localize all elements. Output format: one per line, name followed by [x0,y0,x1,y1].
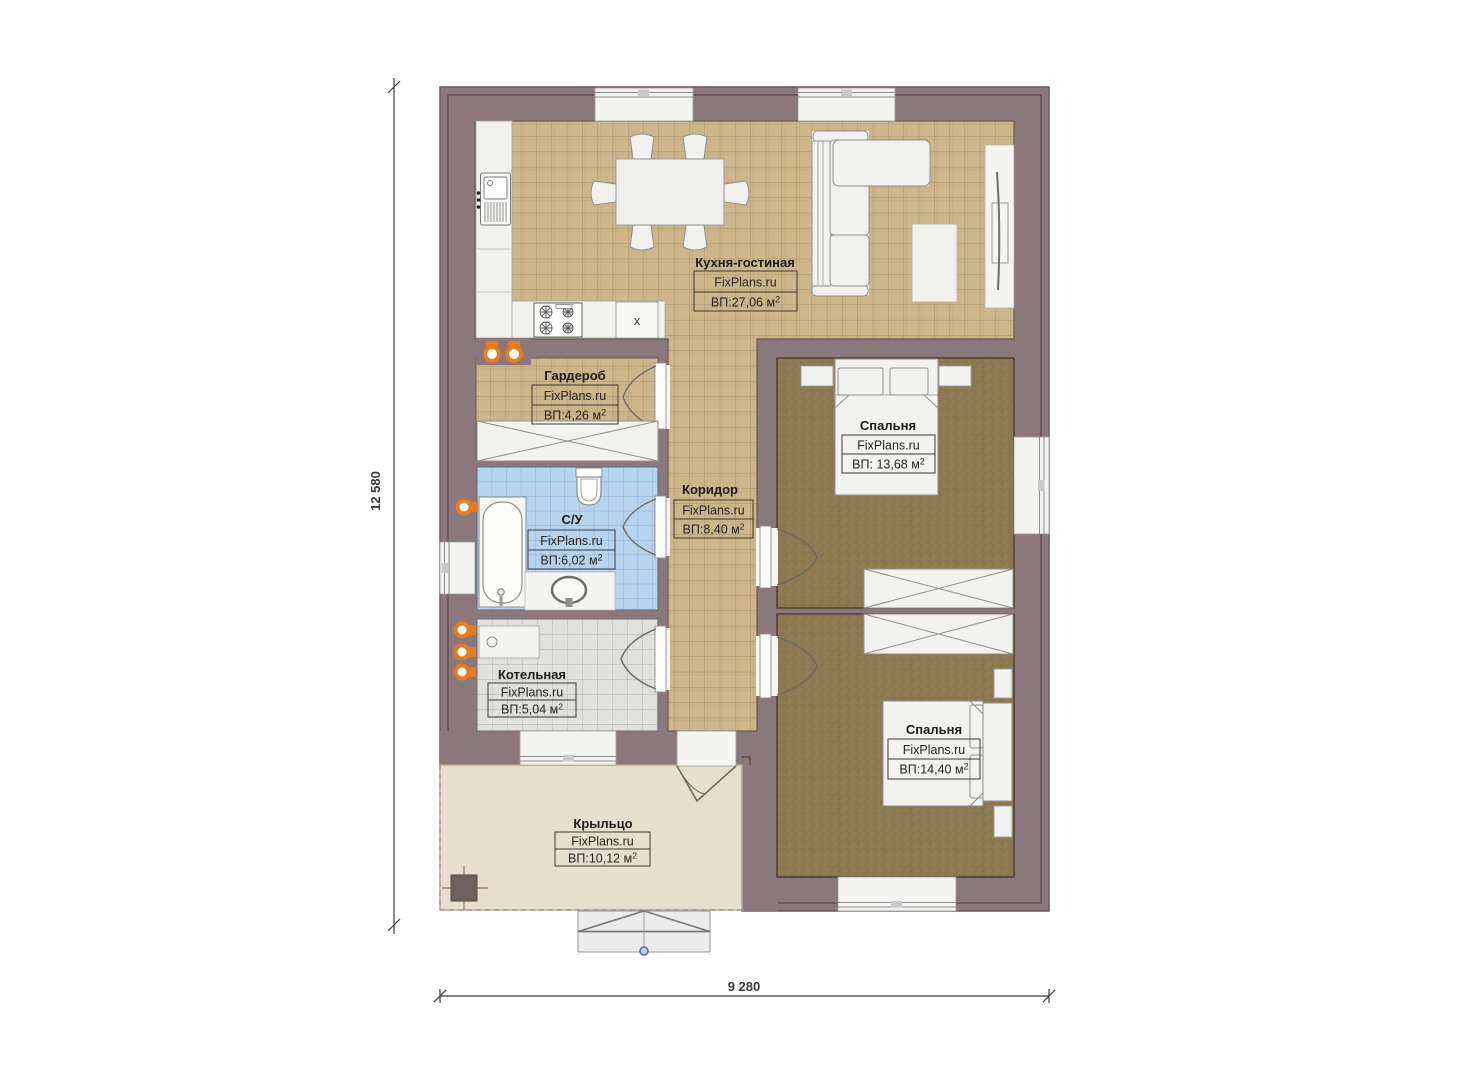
svg-text:ВП: 13,68 м2: ВП: 13,68 м2 [852,457,925,472]
svg-text:ВП:5,04 м2: ВП:5,04 м2 [501,702,563,717]
svg-text:Коридор: Коридор [682,482,738,497]
svg-text:Спальня: Спальня [860,418,916,433]
svg-text:ВП:10,12 м2: ВП:10,12 м2 [568,851,637,866]
svg-text:Гардероб: Гардероб [544,368,605,383]
svg-text:FixPlans.ru: FixPlans.ru [501,686,564,700]
svg-text:12 580: 12 580 [368,471,383,511]
svg-text:ВП:27,06 м2: ВП:27,06 м2 [711,295,780,310]
svg-text:ВП:4,26 м2: ВП:4,26 м2 [544,408,606,423]
svg-text:С/У: С/У [561,512,583,527]
svg-text:FixPlans.ru: FixPlans.ru [903,743,966,757]
svg-text:Крыльцо: Крыльцо [573,816,632,831]
svg-text:FixPlans.ru: FixPlans.ru [714,276,777,290]
svg-text:FixPlans.ru: FixPlans.ru [571,835,634,849]
svg-text:x: x [634,313,641,328]
svg-text:FixPlans.ru: FixPlans.ru [544,389,607,403]
svg-text:Спальня: Спальня [906,722,962,737]
svg-text:Кухня-гостиная: Кухня-гостиная [695,255,795,270]
svg-text:FixPlans.ru: FixPlans.ru [857,439,920,453]
svg-text:Котельная: Котельная [498,667,566,682]
svg-text:ВП:14,40 м2: ВП:14,40 м2 [899,762,968,777]
svg-text:9 280: 9 280 [728,979,761,994]
svg-text:ВП:6,02 м2: ВП:6,02 м2 [540,553,602,568]
svg-text:FixPlans.ru: FixPlans.ru [540,534,603,548]
svg-text:ВП:8,40 м2: ВП:8,40 м2 [683,522,745,537]
svg-text:FixPlans.ru: FixPlans.ru [682,504,745,518]
